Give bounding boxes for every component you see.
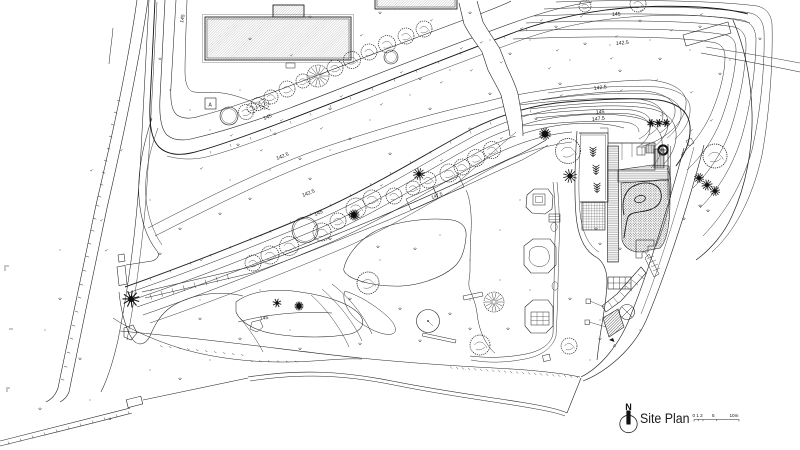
svg-text:Site Plan: Site Plan: [640, 411, 690, 427]
svg-text:142.5: 142.5: [616, 40, 630, 47]
svg-text:N: N: [625, 402, 632, 412]
svg-text:145: 145: [612, 11, 621, 18]
svg-text:A: A: [613, 343, 616, 348]
svg-text:10m: 10m: [730, 413, 739, 418]
svg-text:5: 5: [712, 413, 715, 418]
svg-text:145: 145: [259, 315, 269, 322]
svg-text:0 1 2: 0 1 2: [693, 413, 704, 418]
